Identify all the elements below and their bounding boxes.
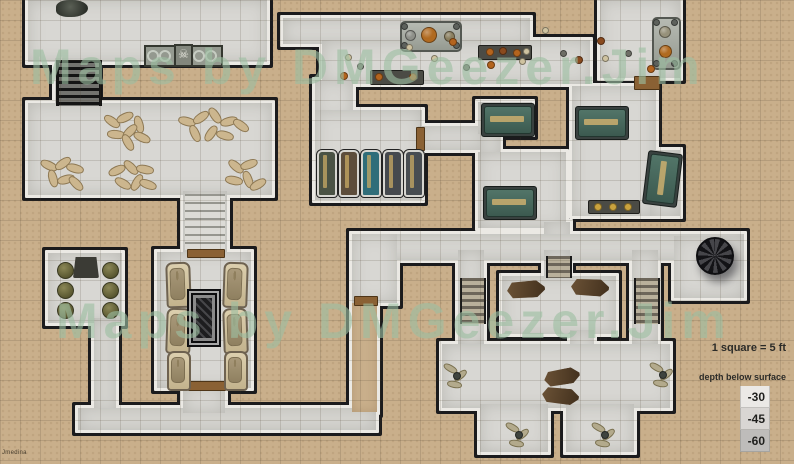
depth-legend-label: depth below surface [666, 372, 794, 382]
skeleton-gear [515, 431, 523, 439]
legend-swatch: -30 [740, 386, 770, 408]
coffin-inscription [323, 155, 327, 188]
door [187, 249, 225, 258]
stool [57, 262, 74, 279]
altar-orb [659, 26, 671, 38]
dungeon-map: ☠Maps by DMGeezer.JimMaps by DMGeezer.Ji… [0, 0, 794, 464]
altar-knob [671, 19, 678, 26]
sarcophagus-effigy [171, 357, 185, 383]
debris [542, 27, 549, 34]
legend-swatch: -45 [740, 408, 770, 430]
table [73, 257, 99, 278]
standing-coffin [317, 150, 337, 197]
standing-coffin [383, 150, 403, 197]
sarcophagus-inscription [584, 119, 618, 125]
sarcophagus-effigy [228, 357, 242, 383]
watermark-middle: Maps by DMGeezer.Jim [56, 292, 732, 350]
altar-knob [453, 23, 460, 30]
legend-swatch: -60 [740, 430, 770, 452]
stool [102, 262, 119, 279]
sarcophagus-inscription [492, 199, 526, 205]
coffin-inscription [345, 155, 349, 188]
spiral-staircase [696, 237, 734, 275]
skeleton-gear [453, 372, 461, 380]
debris [609, 203, 617, 211]
debris [624, 203, 632, 211]
artist-signature: Jmedina [2, 450, 27, 456]
depth-legend-swatches: -30-45-60 [740, 386, 770, 452]
coffin-inscription [389, 155, 393, 188]
sarcophagus-inscription [490, 116, 524, 122]
standing-coffin [404, 150, 424, 197]
debris [594, 203, 602, 211]
coffin-inscription [410, 155, 414, 188]
standing-coffin [361, 150, 381, 197]
map-scale-label: 1 square = 5 ft [666, 342, 794, 354]
coffin-inscription [367, 155, 371, 188]
altar-knob [653, 19, 660, 26]
altar-knob [401, 23, 408, 30]
watermark-top: Maps by DMGeezer.Jim [30, 38, 706, 96]
door [188, 381, 226, 391]
door [416, 127, 425, 151]
standing-coffin [339, 150, 359, 197]
skeleton-gear [601, 431, 609, 439]
